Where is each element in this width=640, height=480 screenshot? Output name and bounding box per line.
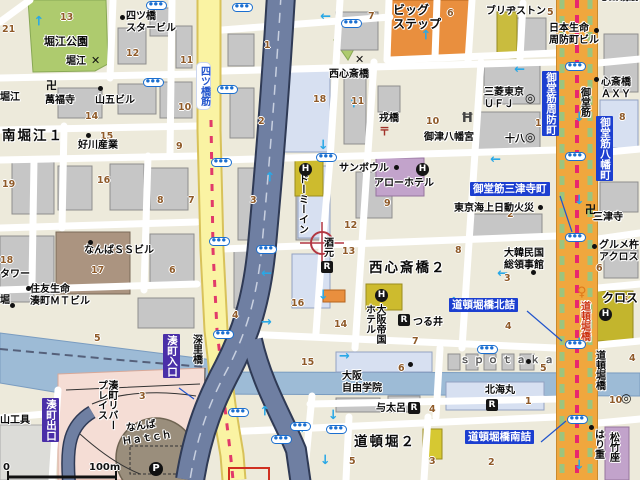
label-dotonboribashi-minamizume: 道頓堀橋南詰	[465, 430, 534, 444]
one-way-arrow-icon: →	[339, 350, 350, 363]
bus-stop-icon: ●●●	[143, 78, 164, 87]
label-osaka-teikoku-hotel: 大阪帝国 ホテル	[363, 304, 384, 344]
bus-stop-icon: ●●●	[217, 85, 238, 94]
bus-stop-icon: ●●●	[211, 158, 232, 167]
label-mitsubishi-ufj: 三菱東京 ＵＦＪ	[484, 87, 524, 110]
one-way-arrow-icon: →	[572, 459, 585, 470]
one-way-arrow-icon: →	[316, 289, 329, 300]
label-cross-hotel: クロス	[602, 292, 638, 306]
block-number: 10	[426, 116, 439, 127]
map-symbol-icon	[531, 270, 536, 275]
map-symbol-icon	[98, 86, 103, 91]
label-yama-kogu: 山工具	[0, 415, 30, 427]
block-number: 19	[2, 179, 15, 190]
map-symbol-icon: H	[416, 163, 429, 176]
map-symbol-icon: ♀	[577, 286, 587, 299]
label-yotsubashi-star-bldg: 四ツ橋 スタービル	[126, 11, 176, 34]
label-horie-park: 堀江公園	[44, 36, 88, 49]
block-number: 6	[398, 363, 405, 374]
label-ebisubashi: 戎橋	[379, 113, 399, 125]
map-symbol-icon	[86, 133, 91, 138]
label-midosuji-road: 御堂筋	[578, 87, 589, 117]
map-symbol-icon	[589, 425, 594, 430]
one-way-arrow-icon: →	[326, 409, 339, 420]
map-symbol-icon	[592, 244, 597, 249]
label-namba-ss-bldg: なんばＳＳビル	[84, 245, 154, 257]
bus-stop-icon: ●●●	[271, 435, 292, 444]
map-symbol-icon: Ħ	[461, 112, 474, 125]
label-yamago-bldg: 山五ビル	[95, 95, 135, 107]
label-dotonboribashi-east: 道頓堀橋	[593, 350, 604, 390]
label-hokkaimaru: 北海丸	[485, 385, 515, 397]
map-symbol-icon	[538, 205, 543, 210]
label-sumitomo-mt-bldg: 住友生命 湊町ＭＴビル	[30, 284, 90, 307]
block-number: 6	[596, 263, 603, 274]
block-number: 3	[250, 195, 257, 206]
one-way-arrow-icon: →	[320, 9, 331, 22]
block-number: 9	[176, 141, 183, 152]
label-manpukuji: 萬福寺	[45, 95, 75, 107]
block-number: 3	[139, 391, 146, 402]
bus-stop-icon: ●●●	[290, 422, 311, 431]
label-sun-bowl: サンボウル	[339, 163, 389, 175]
one-way-arrow-icon: →	[318, 454, 331, 465]
block-number: 12	[126, 48, 139, 59]
block-number: 8	[455, 245, 462, 256]
bus-stop-icon: ●●●	[228, 408, 249, 417]
bus-stop-icon: ●●●	[565, 233, 586, 242]
map-canvas[interactable]: 堀江公園 四ツ橋 スタービル 堀江 萬福寺 山五ビル 南堀江１ 好川産業 堀江 …	[0, 0, 640, 480]
label-tokio-marine: 東京海上日動火災	[454, 203, 534, 215]
label-minatomachi-exit: 湊町出口	[42, 398, 59, 442]
block-number: 21	[2, 24, 15, 35]
label-midosuji-suomachi: 御堂筋周防町	[542, 71, 559, 136]
bus-stop-icon: ●●●	[477, 345, 498, 354]
block-number: 18	[313, 94, 326, 105]
block-number: 7	[412, 336, 419, 347]
block-number: 15	[301, 357, 314, 368]
block-number: 11	[180, 55, 193, 66]
map-symbol-icon: 〒	[379, 126, 390, 137]
label-arrow-hotel: アローホテル	[374, 178, 434, 190]
label-mitsu-hachimangu: 御津八幡宮	[424, 132, 474, 144]
map-symbol-icon: R	[408, 402, 420, 414]
one-way-arrow-icon: →	[264, 171, 277, 182]
one-way-arrow-icon: →	[261, 316, 272, 329]
block-number: 13	[60, 12, 73, 23]
block-number: 9	[384, 198, 391, 209]
map-symbol-icon	[26, 286, 31, 291]
bus-stop-icon: ●●●	[316, 153, 337, 162]
label-shinsaibashisuji-clipped: 心斎橋筋	[599, 0, 639, 4]
label-korea-consulate: 大韓民国 総領事館	[504, 248, 544, 271]
label-midosuji-mitsuteracho: 御堂筋三津寺町	[470, 182, 550, 196]
label-bridgestone: ブリヂストン	[486, 6, 546, 18]
map-symbol-icon: R	[486, 399, 498, 411]
block-number: 8	[157, 195, 164, 206]
label-dotonboribashi-kitazume: 道頓堀橋北詰	[449, 298, 518, 312]
map-symbol-icon: P	[149, 462, 163, 476]
bus-stop-icon: ●●●	[146, 1, 167, 10]
bus-stop-icon: ●●●	[326, 425, 347, 434]
label-osaka-jiyu-gakuin: 大阪 自由学院	[342, 371, 382, 394]
label-minatomachi-river-place: 湊町リバー プレイス	[95, 380, 116, 430]
label-nishi-shinsaibashi-crossing: 西心斎橋	[329, 69, 369, 81]
one-way-arrow-icon: →	[514, 62, 525, 75]
label-mitsutera: 三津寺	[593, 212, 623, 224]
label-nishi-shinsaibashi-2: 西心斎橋２	[369, 261, 447, 277]
map-symbol-icon: ◎	[621, 392, 631, 404]
block-number: 8	[619, 112, 626, 123]
bus-stop-icon: ●●●	[341, 19, 362, 28]
map-symbol-icon: H	[299, 163, 312, 176]
block-number: 14	[334, 319, 347, 330]
map-symbol-icon: R	[398, 314, 410, 326]
block-number: 11	[351, 96, 364, 107]
label-tower-clipped: タワー	[0, 269, 30, 281]
label-midosuji-hachimancho: 御堂筋八幡町	[596, 116, 613, 181]
block-number: 5	[349, 456, 356, 467]
block-number: 4	[629, 353, 636, 364]
block-number: 6	[169, 265, 176, 276]
label-horie-crossing: 堀江	[66, 56, 86, 68]
label-dotonboribashi-on-road: 道頓堀橋	[578, 301, 589, 341]
map-symbol-icon	[88, 240, 93, 245]
label-big-step: ビッグ ステップ	[393, 4, 441, 32]
block-number: 16	[291, 298, 304, 309]
one-way-arrow-icon: →	[261, 266, 272, 279]
label-yotsubashisuji-road: 四ツ橋筋	[196, 62, 211, 110]
label-sakemoto: 酒元	[321, 237, 332, 257]
label-fukaribashi: 深里橋	[190, 334, 201, 364]
one-way-arrow-icon: →	[33, 15, 46, 26]
map-symbol-icon: 卍	[46, 80, 57, 91]
map-symbol-icon: ✕	[355, 54, 364, 65]
block-number: 10	[178, 102, 191, 113]
label-dotonbori-2: 道頓堀２	[354, 435, 416, 451]
block-number: 1	[535, 118, 542, 129]
label-shochikuza: 松竹座	[607, 432, 618, 462]
map-symbol-icon: ◎	[525, 92, 535, 104]
bus-stop-icon: ●●●	[565, 62, 586, 71]
block-number: 17	[91, 265, 104, 276]
block-number: 7	[188, 195, 195, 206]
map-symbol-icon	[594, 77, 599, 82]
map-symbol-icon	[10, 303, 15, 308]
bus-stop-icon: ●●●	[567, 415, 588, 424]
label-yotaro: 与太呂	[376, 403, 406, 415]
label-dormy-inn: ドーミーイン	[296, 174, 307, 234]
label-nissay-suomachi-bldg: 日本生命 周防町ビル	[549, 23, 599, 46]
block-number: 2	[258, 116, 265, 127]
map-symbol-icon: R	[321, 261, 333, 273]
map-symbol-icon	[394, 165, 399, 170]
block-number: 6	[447, 8, 454, 19]
label-harijyu: はり重	[592, 429, 603, 459]
block-number: 14	[85, 111, 98, 122]
map-symbol-icon: H	[375, 289, 388, 302]
block-number: 4	[429, 404, 436, 415]
label-minami-horie-1: 南堀江１	[2, 129, 64, 145]
bus-stop-icon: ●●●	[232, 3, 253, 12]
map-symbol-icon	[120, 15, 125, 20]
block-number: 4	[232, 310, 239, 321]
map-symbol-icon	[594, 28, 599, 33]
map-symbol-icon: ◎	[525, 131, 535, 143]
block-number: 12	[344, 220, 357, 231]
scale-distance: 100m	[89, 462, 120, 473]
label-juhachi-bank: 十八	[505, 134, 525, 146]
label-tsurui: つる井	[413, 317, 443, 329]
block-number: 1	[264, 40, 271, 51]
bus-stop-icon: ●●●	[213, 330, 234, 339]
label-shinsaibashi-axy: 心斎橋 ＡＸＹ	[601, 77, 631, 100]
label-spotaka: ｓｐｏｔａｋａ	[460, 355, 558, 367]
block-number: 5	[94, 333, 101, 344]
one-way-arrow-icon: →	[316, 139, 329, 150]
label-hori-clipped: 堀	[0, 295, 10, 307]
map-symbol-icon	[408, 362, 413, 367]
block-number: 3	[429, 456, 436, 467]
block-number: 13	[342, 246, 355, 257]
label-minatomachi-entrance: 湊町入口	[163, 334, 180, 378]
map-symbol-icon: 卍	[585, 204, 596, 215]
scale-zero: 0	[3, 462, 10, 473]
block-number: 1	[525, 396, 532, 407]
one-way-arrow-icon: →	[490, 152, 501, 165]
bus-stop-icon: ●●●	[209, 237, 230, 246]
bus-stop-icon: ●●●	[565, 340, 586, 349]
block-number: 4	[505, 321, 512, 332]
one-way-arrow-icon: →	[572, 194, 585, 205]
map-symbol-icon	[526, 359, 531, 364]
block-number: 18	[0, 255, 13, 266]
one-way-arrow-icon: →	[259, 405, 272, 416]
label-yoshikawa-sangyo: 好川産業	[78, 140, 118, 152]
block-number: 2	[488, 457, 495, 468]
block-number: 3	[504, 273, 511, 284]
label-horie-left: 堀江	[0, 92, 20, 104]
map-symbol-icon: H	[599, 308, 612, 321]
bus-stop-icon: ●●●	[256, 245, 277, 254]
block-number: 7	[368, 11, 375, 22]
block-number: 5	[547, 7, 554, 18]
map-symbol-icon: ✕	[91, 55, 100, 66]
bus-stop-icon: ●●●	[565, 152, 586, 161]
block-number: 16	[97, 175, 110, 186]
label-gourmet-across: グルメ杵 アクロス	[599, 240, 639, 263]
